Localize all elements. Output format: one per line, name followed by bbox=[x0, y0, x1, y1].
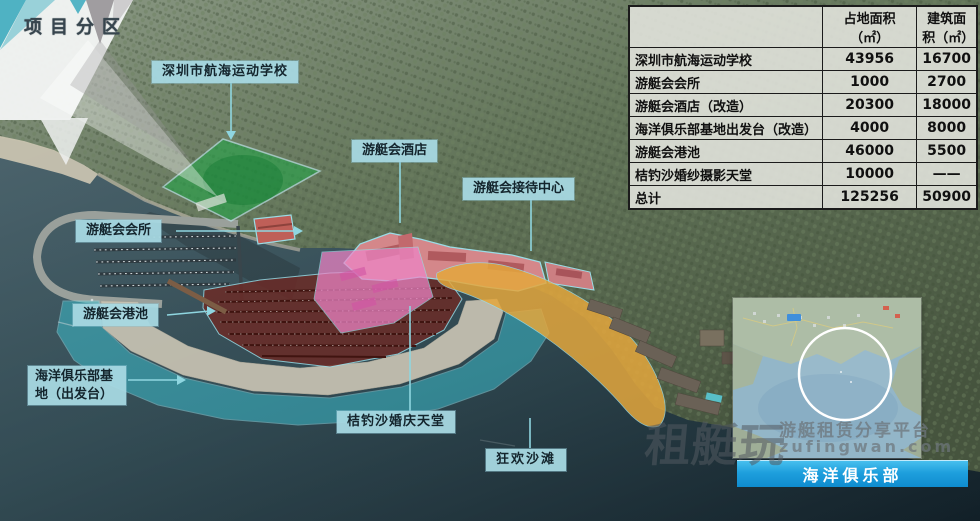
row-name: 游艇会会所 bbox=[629, 71, 823, 94]
table-row: 游艇会港池 46000 5500 bbox=[629, 140, 977, 163]
watermark-brand: 租艇玩 bbox=[642, 409, 789, 475]
table-header-row: 占地面积（㎡） 建筑面积（㎡） bbox=[629, 6, 977, 48]
table-row: 海洋俱乐部基地出发台（改造） 4000 8000 bbox=[629, 117, 977, 140]
row-built: 2700 bbox=[917, 71, 977, 94]
label-yacht-clubhouse: 游艇会会所 bbox=[76, 220, 161, 242]
table-row: 桔钓沙婚纱摄影天堂 10000 —— bbox=[629, 163, 977, 186]
row-built: 50900 bbox=[917, 186, 977, 210]
row-built: —— bbox=[917, 163, 977, 186]
table-row: 游艇会会所 1000 2700 bbox=[629, 71, 977, 94]
row-land: 46000 bbox=[823, 140, 917, 163]
row-land: 125256 bbox=[823, 186, 917, 210]
row-land: 10000 bbox=[823, 163, 917, 186]
row-land: 43956 bbox=[823, 48, 917, 71]
row-name: 游艇会港池 bbox=[629, 140, 823, 163]
row-name: 深圳市航海运动学校 bbox=[629, 48, 823, 71]
table-row: 深圳市航海运动学校 43956 16700 bbox=[629, 48, 977, 71]
slide: 项目分区 海洋俱乐部 租艇玩 游艇租赁分享平 bbox=[0, 0, 980, 521]
row-built: 16700 bbox=[917, 48, 977, 71]
clubhouse-building bbox=[254, 215, 295, 244]
col-header-land: 占地面积（㎡） bbox=[823, 6, 917, 48]
table-row total-row: 总计 125256 50900 bbox=[629, 186, 977, 210]
sea-boat bbox=[91, 299, 94, 302]
row-name: 桔钓沙婚纱摄影天堂 bbox=[629, 163, 823, 186]
label-carnival-beach: 狂欢沙滩 bbox=[486, 449, 566, 471]
row-name: 游艇会酒店（改造） bbox=[629, 94, 823, 117]
table-row: 游艇会酒店（改造） 20300 18000 bbox=[629, 94, 977, 117]
row-built: 8000 bbox=[917, 117, 977, 140]
row-land: 1000 bbox=[823, 71, 917, 94]
row-land: 20300 bbox=[823, 94, 917, 117]
area-table: 占地面积（㎡） 建筑面积（㎡） 深圳市航海运动学校 43956 16700 游艇… bbox=[628, 5, 978, 210]
label-club-base: 海洋俱乐部基地（出发台） bbox=[28, 366, 126, 405]
row-built: 5500 bbox=[917, 140, 977, 163]
row-land: 4000 bbox=[823, 117, 917, 140]
row-name: 海洋俱乐部基地出发台（改造） bbox=[629, 117, 823, 140]
map-poi-chip bbox=[787, 314, 801, 321]
label-wedding-paradise: 桔钓沙婚庆天堂 bbox=[337, 411, 455, 433]
site-highlight-circle bbox=[799, 328, 891, 420]
label-yacht-port: 游艇会港池 bbox=[73, 304, 158, 326]
watermark-domain: zufingwan.com bbox=[779, 437, 954, 456]
label-sailing-school: 深圳市航海运动学校 bbox=[152, 61, 298, 83]
page-title: 项目分区 bbox=[24, 13, 128, 39]
col-header-built: 建筑面积（㎡） bbox=[917, 6, 977, 48]
row-built: 18000 bbox=[917, 94, 977, 117]
table-corner-cell bbox=[629, 6, 823, 48]
label-reception-center: 游艇会接待中心 bbox=[463, 178, 574, 200]
row-name: 总计 bbox=[629, 186, 823, 210]
label-yacht-hotel: 游艇会酒店 bbox=[352, 140, 437, 162]
